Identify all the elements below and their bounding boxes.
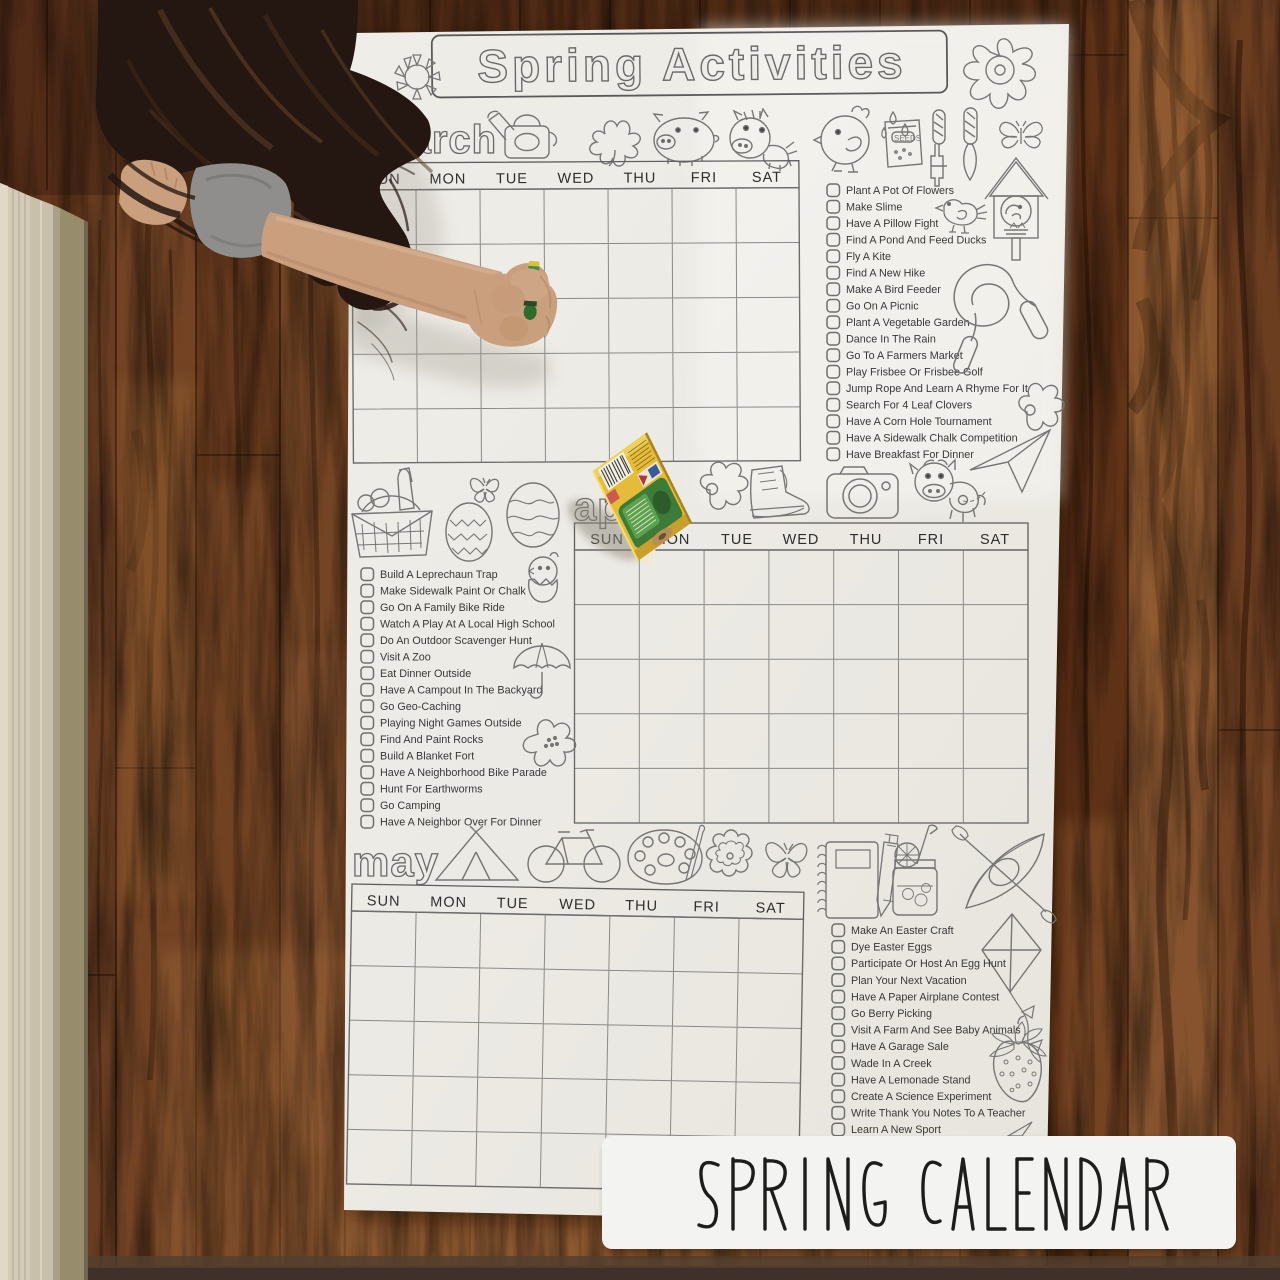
svg-text:Go On A Picnic: Go On A Picnic [846,301,919,313]
svg-text:Plan Your Next Vacation: Plan Your Next Vacation [851,975,967,987]
svg-text:MON: MON [429,171,466,187]
svg-text:Search For 4 Leaf Clovers: Search For 4 Leaf Clovers [846,400,973,412]
svg-text:TUE: TUE [496,171,528,187]
svg-text:Dance In The Rain: Dance In The Rain [846,334,936,346]
svg-text:Have A Campout In The Backyard: Have A Campout In The Backyard [380,685,542,697]
svg-text:TUE: TUE [497,896,529,913]
svg-text:Watch A Play At A Local High S: Watch A Play At A Local High School [380,619,555,631]
svg-text:Have A Neighbor Over For Dinne: Have A Neighbor Over For Dinner [380,817,542,829]
svg-text:Make Slime: Make Slime [846,202,902,214]
svg-text:Visit A Zoo: Visit A Zoo [380,652,431,664]
svg-text:SAT: SAT [755,900,785,917]
svg-text:Plant A Pot Of Flowers: Plant A Pot Of Flowers [846,185,955,197]
svg-text:Go On A Family Bike Ride: Go On A Family Bike Ride [380,602,505,614]
svg-text:Go Berry Picking: Go Berry Picking [851,1008,932,1020]
svg-text:Wade In A Creek: Wade In A Creek [851,1058,932,1070]
svg-text:Go To A Farmers Market: Go To A Farmers Market [846,350,963,362]
svg-text:FRI: FRI [693,899,720,915]
svg-text:Learn A New Sport: Learn A New Sport [851,1124,941,1136]
svg-text:Build A Blanket Fort: Build A Blanket Fort [380,751,474,763]
svg-text:THU: THU [625,898,658,915]
svg-text:Have A Garage Sale: Have A Garage Sale [851,1041,949,1053]
svg-text:may: may [352,838,439,885]
svg-text:Have A Lemonade Stand: Have A Lemonade Stand [851,1074,970,1086]
svg-text:Playing Night Games Outside: Playing Night Games Outside [380,718,522,730]
svg-text:Have A Neighborhood Bike Parad: Have A Neighborhood Bike Parade [380,767,547,779]
svg-text:SAT: SAT [752,170,782,186]
svg-text:Have A Paper Airplane Contest: Have A Paper Airplane Contest [851,991,999,1003]
svg-text:Fly A Kite: Fly A Kite [846,251,891,263]
svg-text:TUE: TUE [721,532,753,548]
svg-text:Create A Science Experiment: Create A Science Experiment [851,1091,991,1103]
svg-text:Find A Pond And Feed Ducks: Find A Pond And Feed Ducks [846,235,987,247]
svg-text:Go Geo-Caching: Go Geo-Caching [380,701,461,713]
svg-text:Jump Rope And Learn A Rhyme Fo: Jump Rope And Learn A Rhyme For It [846,383,1028,395]
svg-text:Go Camping: Go Camping [380,800,441,812]
svg-text:FRI: FRI [691,170,717,186]
svg-text:Do An Outdoor Scavenger Hunt: Do An Outdoor Scavenger Hunt [380,635,532,647]
svg-text:Build A Leprechaun Trap: Build A Leprechaun Trap [380,569,498,581]
svg-text:SEEDS: SEEDS [894,134,921,143]
svg-text:THU: THU [624,170,657,186]
svg-text:Plant A Vegetable Garden: Plant A Vegetable Garden [846,317,970,329]
svg-text:THU: THU [850,532,883,548]
svg-text:WED: WED [557,171,594,187]
svg-text:WED: WED [783,532,820,548]
svg-text:FRI: FRI [918,532,944,548]
svg-text:Visit A Farm And See Baby Anim: Visit A Farm And See Baby Animals [851,1025,1021,1037]
svg-text:Have A Pillow Fight: Have A Pillow Fight [846,218,938,230]
svg-text:Make Sidewalk Paint Or Chalk: Make Sidewalk Paint Or Chalk [380,586,526,598]
svg-text:Write Thank You Notes To A Tea: Write Thank You Notes To A Teacher [851,1108,1026,1120]
svg-text:Make An Easter Craft: Make An Easter Craft [851,925,954,937]
svg-text:Dye Easter Eggs: Dye Easter Eggs [851,942,933,954]
svg-text:Find A New Hike: Find A New Hike [846,268,925,280]
svg-text:Eat Dinner Outside: Eat Dinner Outside [380,668,471,680]
svg-text:Spring Activities: Spring Activities [477,36,907,92]
svg-text:Make A Bird Feeder: Make A Bird Feeder [846,284,941,296]
svg-text:Find And Paint Rocks: Find And Paint Rocks [380,734,484,746]
svg-text:MON: MON [430,894,467,911]
svg-text:SUN: SUN [367,893,401,910]
svg-text:Have A Sidewalk Chalk Competit: Have A Sidewalk Chalk Competition [846,433,1018,445]
svg-text:SAT: SAT [980,532,1010,548]
svg-text:Participate Or Host An Egg Hun: Participate Or Host An Egg Hunt [851,958,1006,970]
svg-text:Hunt For Earthworms: Hunt For Earthworms [380,784,483,796]
svg-text:Have A Corn Hole Tournament: Have A Corn Hole Tournament [846,416,992,428]
svg-text:WED: WED [559,897,596,914]
